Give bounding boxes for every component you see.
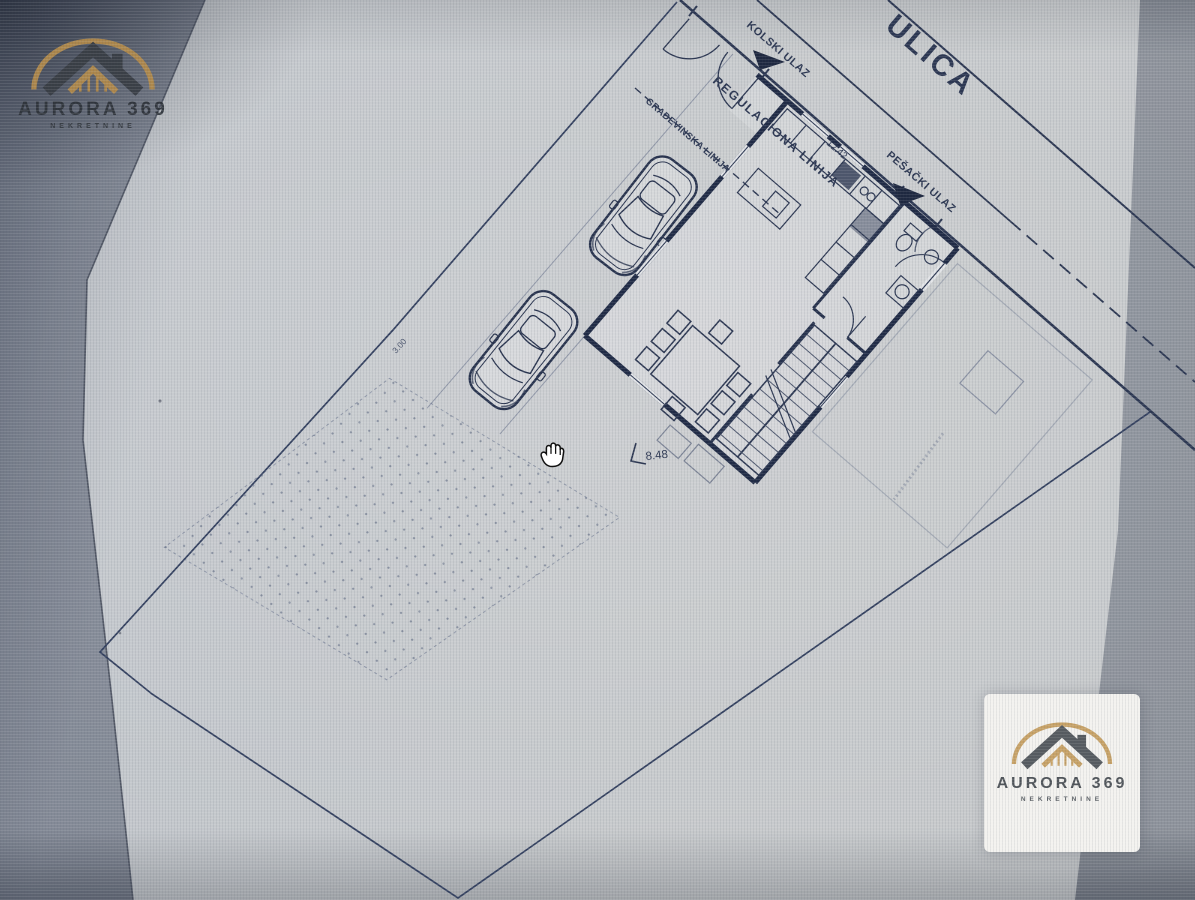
brand-tagline: NEKRETNINE <box>984 796 1140 803</box>
photo-canvas[interactable]: ULICA REGULACIONA LINIJA KOLSKI ULAZ PEŠ… <box>0 0 1195 900</box>
logo-card-bottom-right: AURORA 369 NEKRETNINE <box>984 694 1140 852</box>
logo-roof-icon <box>18 22 168 98</box>
brand-name: AURORA 369 <box>8 99 178 121</box>
watermark-logo-top-left: AURORA 369 NEKRETNINE <box>8 22 178 130</box>
brand-name: AURORA 369 <box>984 775 1140 793</box>
speck <box>119 632 122 635</box>
logo-roof-icon <box>1002 708 1122 772</box>
svg-text:8.48: 8.48 <box>645 449 669 463</box>
brand-tagline: NEKRETNINE <box>8 123 178 130</box>
drawing-paper <box>83 0 1140 900</box>
speck <box>159 400 162 403</box>
